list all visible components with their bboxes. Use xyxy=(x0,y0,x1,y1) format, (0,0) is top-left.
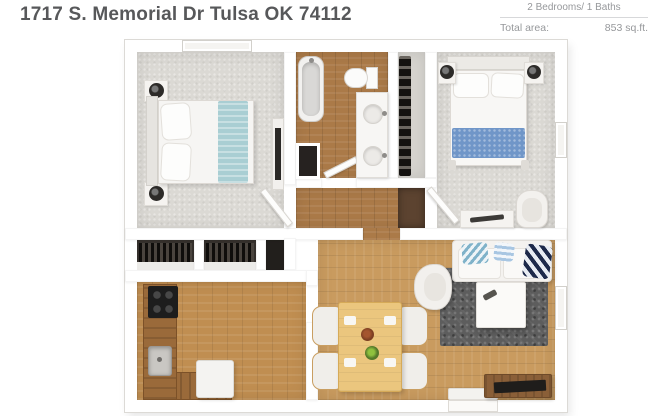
wall xyxy=(125,270,318,282)
listing-floorplan-page: 1717 S. Memorial Dr Tulsa OK 74112 2 Bed… xyxy=(0,0,652,416)
pillow xyxy=(490,72,524,99)
wall xyxy=(256,240,266,270)
window xyxy=(555,286,567,330)
sink-faucet xyxy=(382,153,387,158)
refrigerator xyxy=(196,360,234,398)
armchair-seat xyxy=(424,273,446,301)
wall xyxy=(400,228,567,240)
sink-basin xyxy=(363,146,383,166)
window xyxy=(555,122,567,158)
info-panel: 2 Bedrooms/ 1 Baths Total area: 853 sq.f… xyxy=(500,0,648,34)
beds-baths-label: 2 Bedrooms/ 1 Baths xyxy=(500,0,648,18)
entry-door xyxy=(448,400,498,412)
wall xyxy=(425,52,437,178)
pillow xyxy=(160,102,193,141)
total-area-row: Total area: 853 sq.ft. xyxy=(500,18,648,34)
wall xyxy=(306,270,318,286)
hanging-clothes xyxy=(139,243,192,262)
place-setting xyxy=(344,316,356,325)
wall xyxy=(284,52,296,185)
total-area-label: Total area: xyxy=(500,22,549,34)
throw-pillow xyxy=(461,242,489,265)
bedroom-1-dresser-top xyxy=(275,128,281,180)
desk-chair-seat xyxy=(522,198,542,222)
total-area-value: 853 sq.ft. xyxy=(605,22,648,34)
wall xyxy=(284,238,296,270)
toilet-bowl xyxy=(344,68,368,88)
bed-2-blanket xyxy=(452,128,525,158)
table-lamp xyxy=(527,65,541,79)
page-title: 1717 S. Memorial Dr Tulsa OK 74112 xyxy=(20,4,352,26)
throw-blanket xyxy=(522,243,553,279)
kitchen-faucet xyxy=(157,357,162,362)
coffee-table xyxy=(476,282,526,328)
window xyxy=(182,40,252,52)
bed-1-blanket xyxy=(218,101,248,183)
wall xyxy=(125,228,363,240)
bathtub-basin xyxy=(302,62,320,116)
stove xyxy=(148,286,178,318)
wall xyxy=(296,178,322,188)
hanging-clothes xyxy=(206,243,254,262)
floorplan-render xyxy=(125,40,567,412)
sink-faucet xyxy=(382,111,387,116)
throw-pillow xyxy=(493,242,515,262)
utility-closet xyxy=(266,238,284,270)
place-setting xyxy=(344,358,356,367)
hall-opening-floor xyxy=(363,228,400,240)
place-setting xyxy=(384,358,396,367)
bedroom-2-closet-floor xyxy=(398,188,425,228)
bed-foot xyxy=(448,160,456,170)
pillow xyxy=(160,142,192,182)
wall xyxy=(194,240,204,270)
place-setting xyxy=(384,316,396,325)
bed-1-headboard xyxy=(146,96,158,186)
bed-foot xyxy=(521,160,529,170)
bed-2-headboard xyxy=(447,56,530,70)
wall xyxy=(388,52,398,178)
table-plant xyxy=(365,346,379,360)
table-plant xyxy=(361,328,374,341)
linen-closet-interior xyxy=(299,146,317,176)
pillow xyxy=(453,73,489,98)
bathtub-faucet xyxy=(309,58,314,63)
table-lamp xyxy=(440,65,454,79)
shoe-rack xyxy=(399,56,411,176)
wall xyxy=(356,178,437,188)
table-lamp xyxy=(149,186,164,201)
sink-basin xyxy=(363,104,383,124)
